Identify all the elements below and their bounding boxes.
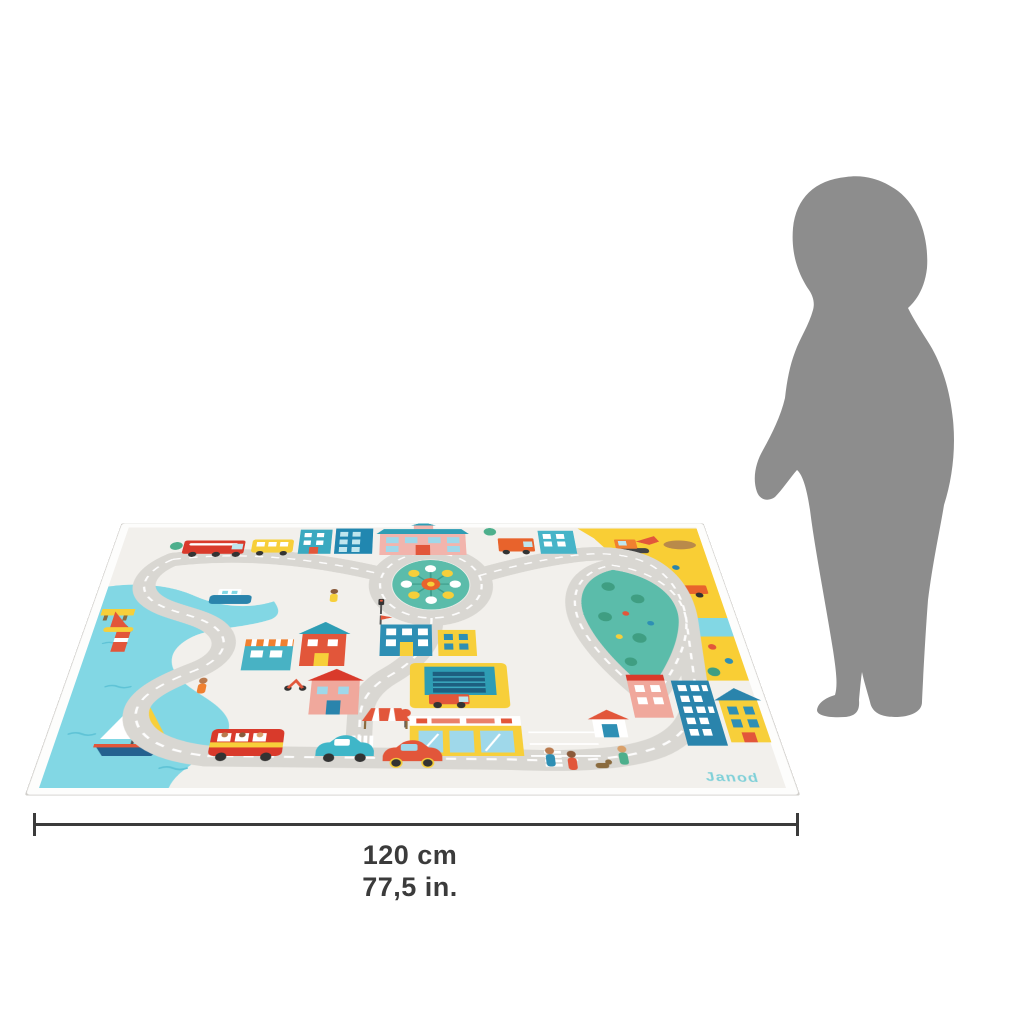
- play-mat: Janod: [25, 523, 800, 795]
- garage-icon: [410, 663, 511, 708]
- dimension-label-cm: 120 cm: [0, 840, 820, 872]
- mat-illustration: Janod: [25, 523, 800, 795]
- child-silhouette-shape: [755, 176, 954, 717]
- dimension-labels: 120 cm 77,5 in.: [0, 840, 820, 904]
- width-dimension-line: [33, 823, 799, 826]
- child-silhouette: [745, 170, 960, 725]
- apartment-building-icon: [298, 530, 333, 554]
- janod-logo: Janod: [704, 771, 761, 786]
- dimension-label-in: 77,5 in.: [0, 872, 820, 904]
- shop-awning-icon: [241, 639, 294, 670]
- child-silhouette-graphic: [745, 170, 960, 725]
- pedestrian-icon: [330, 589, 339, 602]
- dimension-cap-left: [33, 813, 36, 836]
- apartment-building-icon: [334, 529, 373, 554]
- yellow-building-icon: [438, 630, 477, 656]
- fire-truck-icon: [181, 540, 246, 556]
- apartment-building-icon: [537, 531, 577, 554]
- dimension-cap-right: [796, 813, 799, 836]
- product-size-diagram: Janod 120 cm 77,5 in.: [0, 0, 1024, 1024]
